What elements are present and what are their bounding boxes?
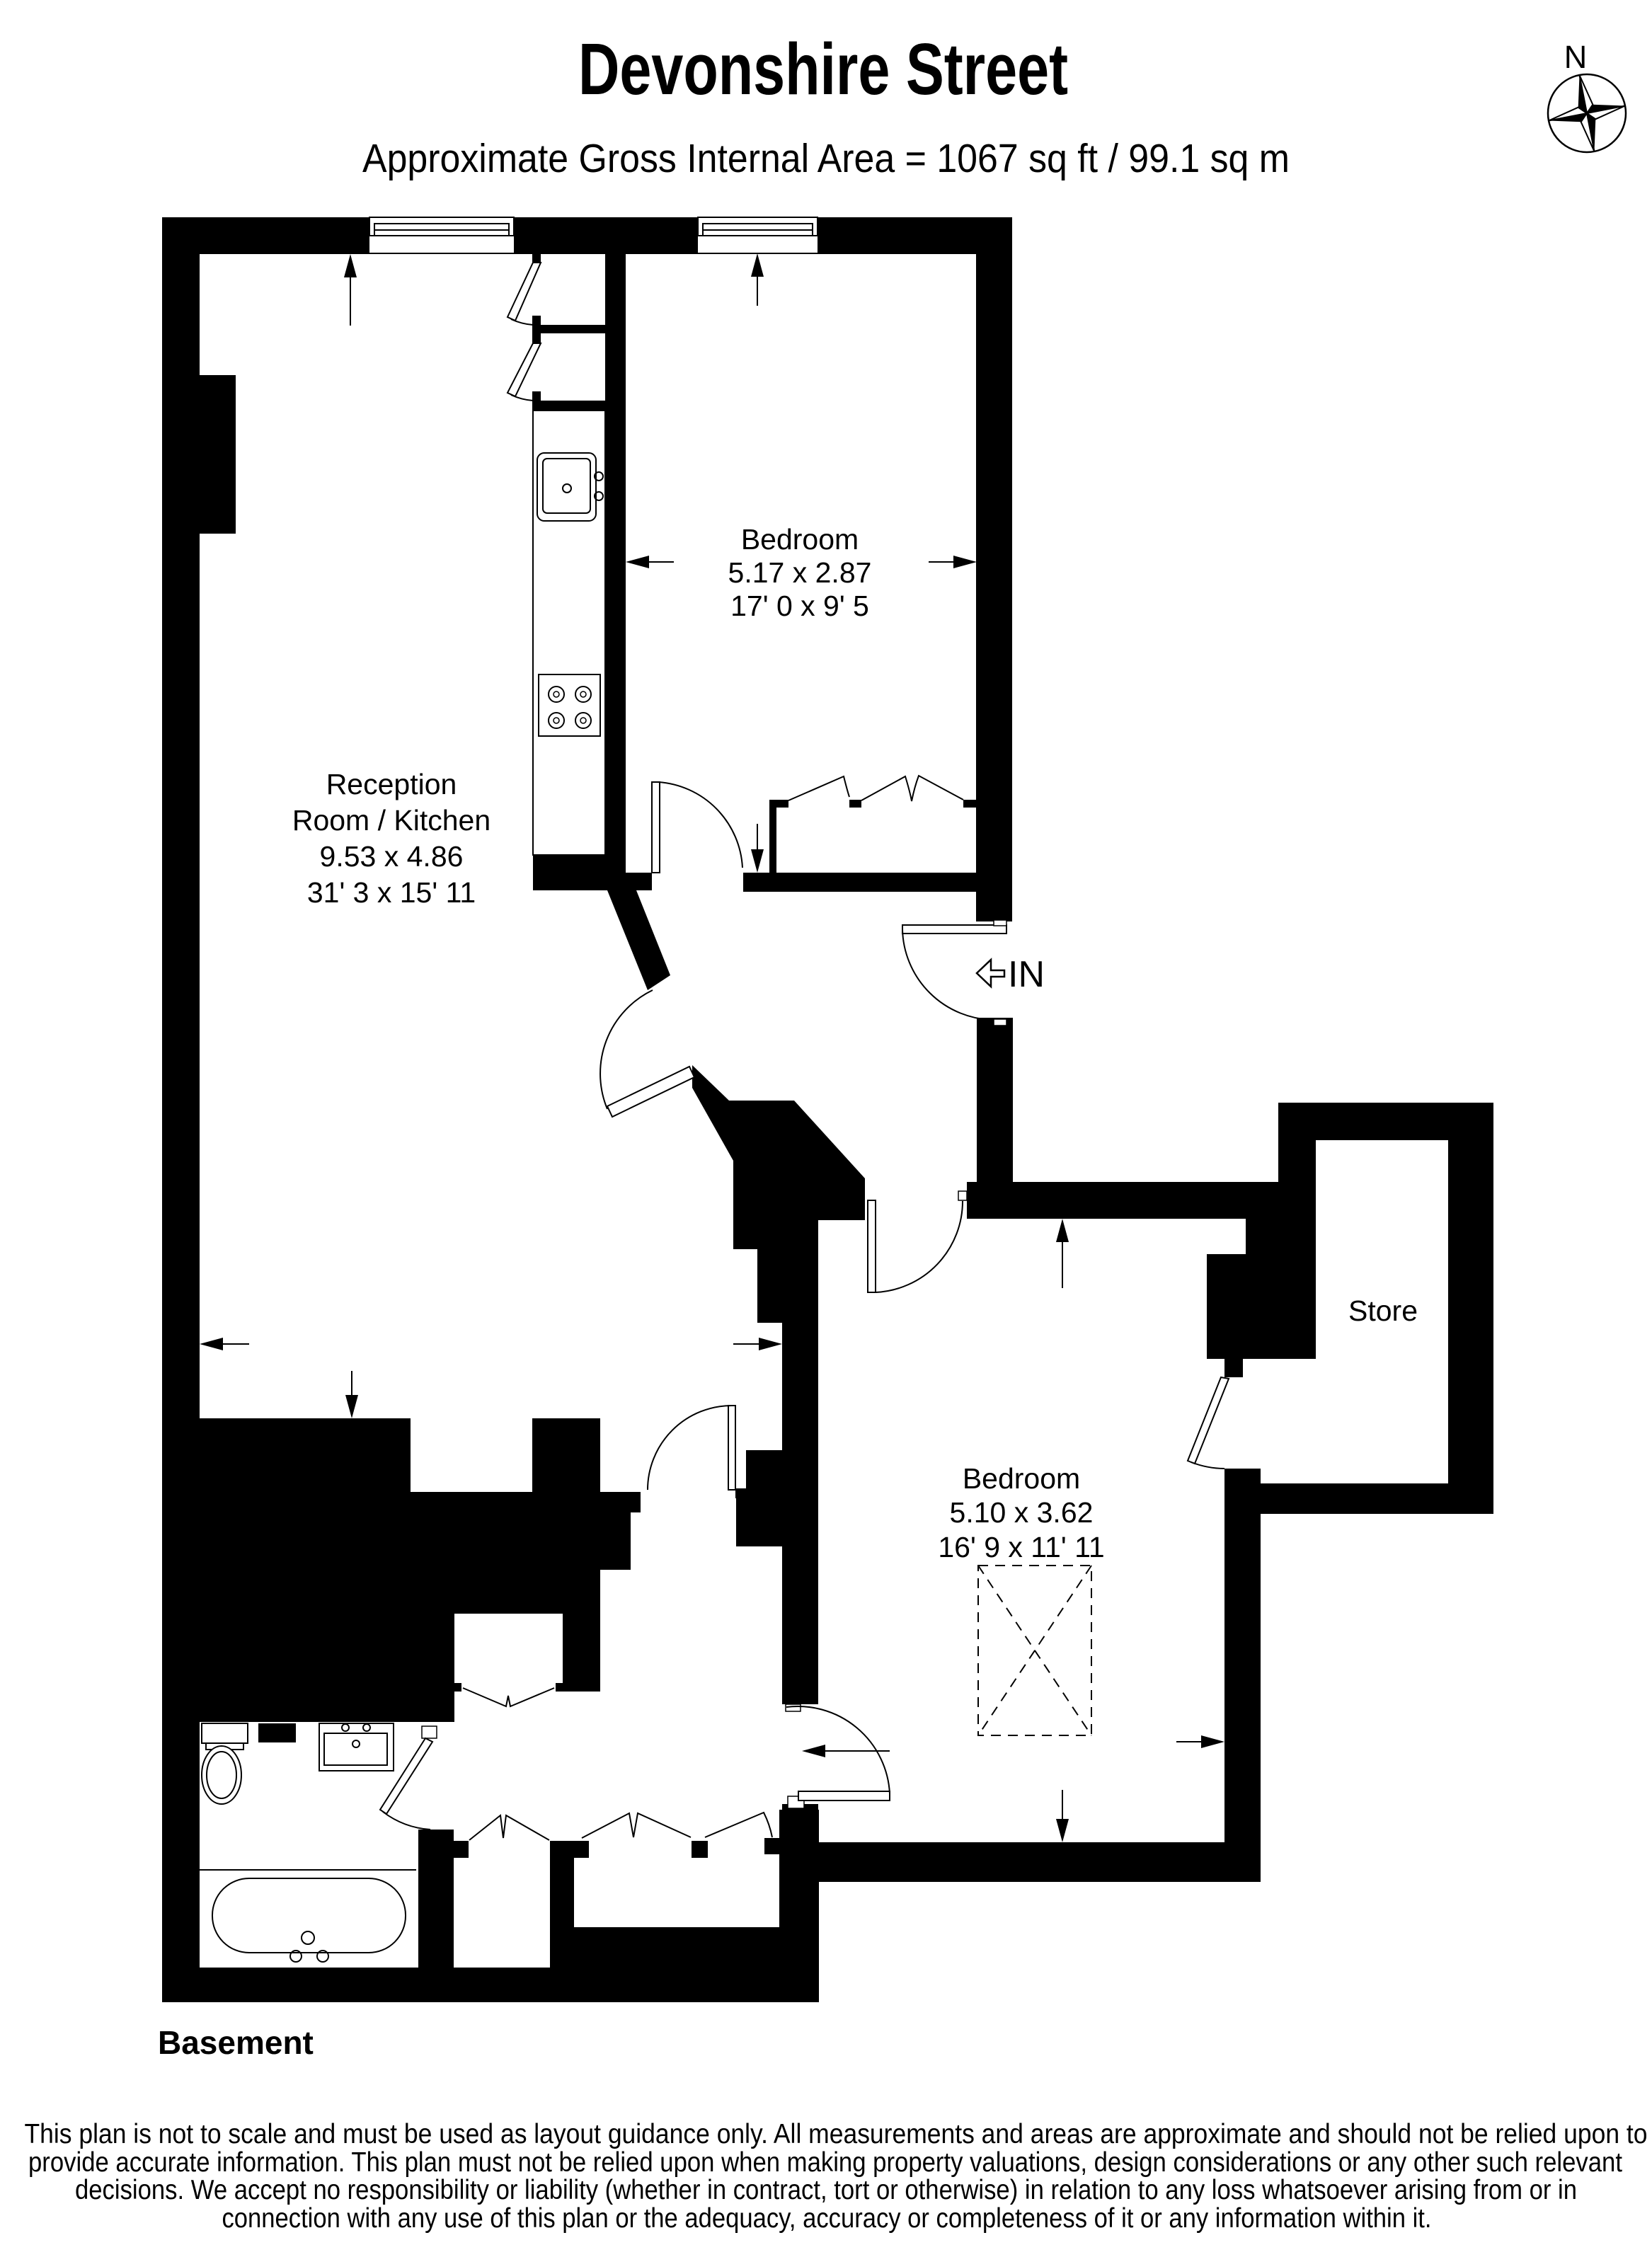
svg-text:Basement: Basement (158, 2024, 314, 2061)
svg-text:Approximate Gross Internal Are: Approximate Gross Internal Area = 1067 s… (362, 136, 1290, 181)
svg-text:9.53 x 4.86: 9.53 x 4.86 (320, 840, 464, 873)
svg-text:Room / Kitchen: Room / Kitchen (292, 804, 491, 837)
svg-text:5.17 x 2.87: 5.17 x 2.87 (728, 556, 872, 589)
svg-text:IN: IN (1008, 954, 1045, 995)
svg-text:31' 3 x 15' 11: 31' 3 x 15' 11 (307, 876, 476, 909)
svg-text:17' 0 x 9' 5: 17' 0 x 9' 5 (730, 590, 869, 622)
svg-text:decisions. We accept no respon: decisions. We accept no responsibility o… (75, 2175, 1577, 2205)
svg-text:Bedroom: Bedroom (741, 523, 859, 556)
svg-text:provide accurate information.: provide accurate information. This plan … (28, 2147, 1622, 2178)
svg-text:connection with any use of thi: connection with any use of this plan or … (222, 2203, 1432, 2234)
svg-text:Devonshire Street: Devonshire Street (578, 28, 1068, 110)
svg-text:N: N (1564, 39, 1588, 75)
svg-text:Bedroom: Bedroom (963, 1462, 1080, 1495)
svg-text:16' 9 x 11' 11: 16' 9 x 11' 11 (938, 1531, 1104, 1563)
svg-text:Reception: Reception (326, 768, 457, 800)
svg-text:Store: Store (1348, 1294, 1418, 1327)
svg-text:This plan is not to scale and: This plan is not to scale and must be us… (25, 2119, 1648, 2149)
svg-text:5.10 x 3.62: 5.10 x 3.62 (950, 1496, 1094, 1529)
